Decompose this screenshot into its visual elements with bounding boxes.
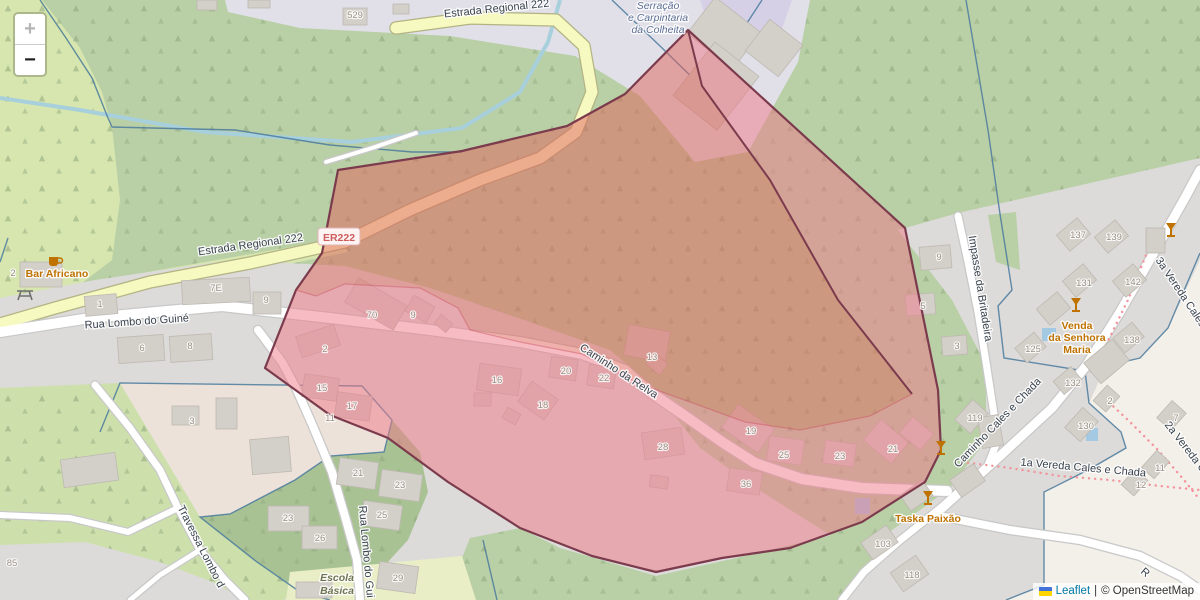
zoom-control: + − — [13, 12, 47, 77]
map-label: 17 — [347, 401, 358, 412]
building — [1146, 228, 1165, 253]
map-label: 15 — [317, 383, 328, 394]
map-label: 21 — [353, 468, 364, 479]
map-label: 137 — [1070, 230, 1086, 241]
map-label: 23 — [395, 480, 406, 491]
zoom-out-button[interactable]: − — [15, 45, 45, 75]
map-label: 23 — [283, 513, 294, 524]
map-label: 11 — [325, 413, 335, 424]
map-label: 7 — [1173, 413, 1178, 424]
map-label: 16 — [492, 375, 503, 386]
svg-text:ER222: ER222 — [323, 232, 355, 244]
map-label: 138 — [1124, 335, 1140, 346]
map-label: 118 — [904, 570, 919, 581]
map-label: 12 — [1136, 480, 1147, 491]
map-label: 85 — [7, 558, 18, 569]
map-label: 8 — [187, 341, 192, 352]
building — [172, 406, 199, 425]
map-label: da Colheita — [631, 24, 684, 36]
map-label: Venda — [1062, 320, 1093, 332]
map-label: Maria — [1063, 344, 1091, 356]
map-label: da Senhora — [1048, 332, 1105, 344]
building — [248, 0, 270, 8]
building — [216, 398, 237, 429]
map-canvas[interactable]: ER222Estrada Regional 222529Serraçãoe Ca… — [0, 0, 1200, 600]
route-shield-er222: ER222 — [318, 228, 360, 245]
map-label: 3 — [189, 416, 194, 427]
map-label: e Carpintaria — [628, 12, 688, 24]
map-label: 119 — [967, 413, 982, 424]
map-label: Taska Paixão — [895, 513, 961, 525]
map-label: 130 — [1078, 421, 1094, 432]
map-label: 3 — [954, 341, 959, 352]
ukraine-flag-icon — [1039, 587, 1052, 596]
map-label: 26 — [315, 533, 326, 544]
building — [250, 436, 292, 474]
map-label: 142 — [1125, 277, 1141, 288]
map-label: 2 — [322, 344, 327, 355]
map-label: Serração — [637, 0, 680, 12]
map-label: 20 — [561, 366, 572, 377]
map-label: Básica — [320, 585, 354, 597]
map-label: 70 — [367, 310, 378, 321]
map-label: 13 — [647, 352, 658, 363]
map-label: Escola — [320, 572, 354, 584]
map-app: ER222Estrada Regional 222529Serraçãoe Ca… — [0, 0, 1200, 600]
map-label: Bar Africano — [26, 268, 89, 280]
map-label: 529 — [347, 10, 363, 21]
map-label: 6 — [139, 343, 144, 354]
map-label: 132 — [1065, 378, 1081, 389]
attribution-bar: Leaflet | © OpenStreetMap — [1033, 583, 1200, 600]
map-label: 125 — [1025, 344, 1041, 355]
map-label: 2 — [1107, 396, 1112, 407]
map-label: 22 — [599, 373, 610, 384]
map-label: 25 — [377, 510, 388, 521]
osm-link[interactable]: © OpenStreetMap — [1101, 585, 1194, 597]
map-label: 36 — [741, 479, 752, 490]
map-label: 9 — [410, 310, 415, 321]
map-label: 25 — [779, 450, 790, 461]
map-label: 23 — [835, 451, 846, 462]
building — [393, 4, 409, 14]
map-label: 9 — [263, 295, 268, 306]
leaflet-link[interactable]: Leaflet — [1056, 585, 1091, 597]
map-label: 5 — [920, 301, 925, 312]
map-label: 29 — [393, 573, 404, 584]
map-label: 139 — [1106, 232, 1122, 243]
map-label: 1 — [97, 299, 102, 310]
attribution-separator: | — [1094, 585, 1097, 597]
map-label: 9 — [936, 252, 941, 263]
map-label: 103 — [875, 539, 891, 550]
building — [197, 0, 217, 10]
map-label: 18 — [538, 400, 549, 411]
map-label: 2 — [10, 268, 15, 279]
zoom-in-button[interactable]: + — [15, 14, 45, 45]
map-label: 21 — [888, 444, 899, 455]
map-label: 7E — [210, 283, 222, 294]
map-label: 11 — [1155, 463, 1165, 474]
map-label: 19 — [746, 426, 757, 437]
map-label: 28 — [658, 442, 669, 453]
map-label: 131 — [1076, 278, 1092, 289]
